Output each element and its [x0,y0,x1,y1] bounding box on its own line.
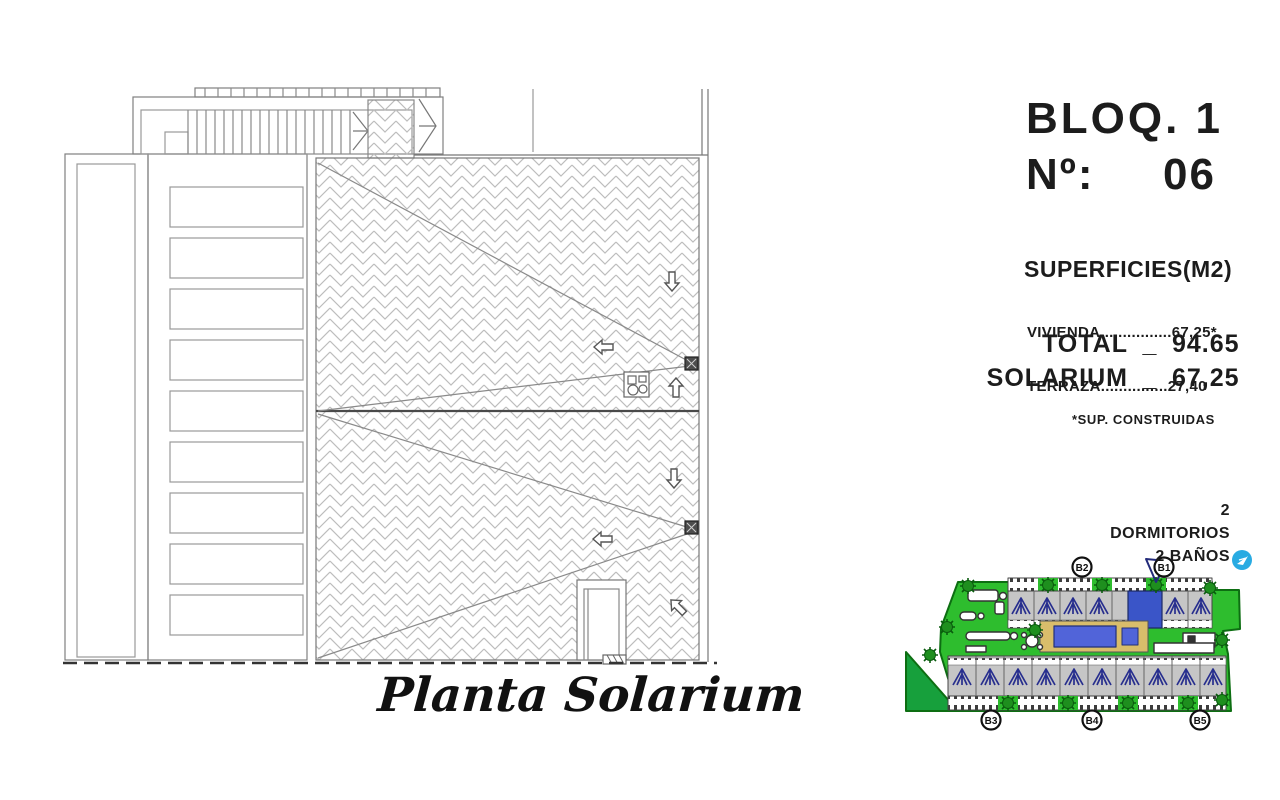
drawing-sheet: B2 B1 B3 B4 B5 BLOQ. 1 Nº: 06 SUPERFICIE… [0,0,1280,800]
stair-treads [188,110,350,154]
surfaces-title: SUPERFICIES(M2) [1024,256,1232,283]
rooftop-unit [624,372,649,397]
footnote: *SUP. CONSTRUIDAS [1072,412,1215,427]
pool [1054,626,1116,647]
total-label: TOTAL [983,330,1128,359]
facade-windows [170,187,303,635]
solarium-value: 67,25 [1172,364,1240,393]
floor-plan [63,88,717,664]
block-label-b5: B5 [1194,716,1207,727]
unit-features: 2 DORMITORIOS 2 BAÑOS [1100,499,1230,568]
site-plan: B2 B1 B3 B4 B5 [906,550,1252,730]
stair-landing-hatch [368,100,414,158]
unit-number-value: 06 [1163,150,1216,200]
landing-arrow [419,99,436,152]
total-separator: _ [1128,330,1172,359]
stair-direction-arrow [353,112,368,150]
solarium-separator: _ [1128,364,1172,393]
pool-area [1040,621,1148,652]
feature-bathrooms: 2 BAÑOS [1100,545,1230,568]
solarium-label: SOLARIUM [983,364,1128,393]
block-label-b4: B4 [1086,716,1099,727]
block-title: BLOQ. 1 [1026,94,1223,144]
totals: TOTAL _ 94.65 SOLARIUM _ 67,25 [983,330,1240,398]
stair-access-door [577,580,626,664]
solarium-terrace-hatch [316,158,699,660]
unit-number-line: Nº: 06 [1026,150,1216,200]
unit-number-label: Nº: [1026,150,1095,200]
solarium-row: SOLARIUM _ 67,25 [983,364,1240,398]
developer-logo [1232,550,1252,570]
block-label-b3: B3 [985,716,998,727]
plan-caption: Planta Solarium [376,668,806,723]
total-row: TOTAL _ 94.65 [983,330,1240,364]
feature-bedrooms: 2 DORMITORIOS [1100,499,1230,545]
total-value: 94.65 [1172,330,1240,359]
block-label-b2: B2 [1076,563,1089,574]
